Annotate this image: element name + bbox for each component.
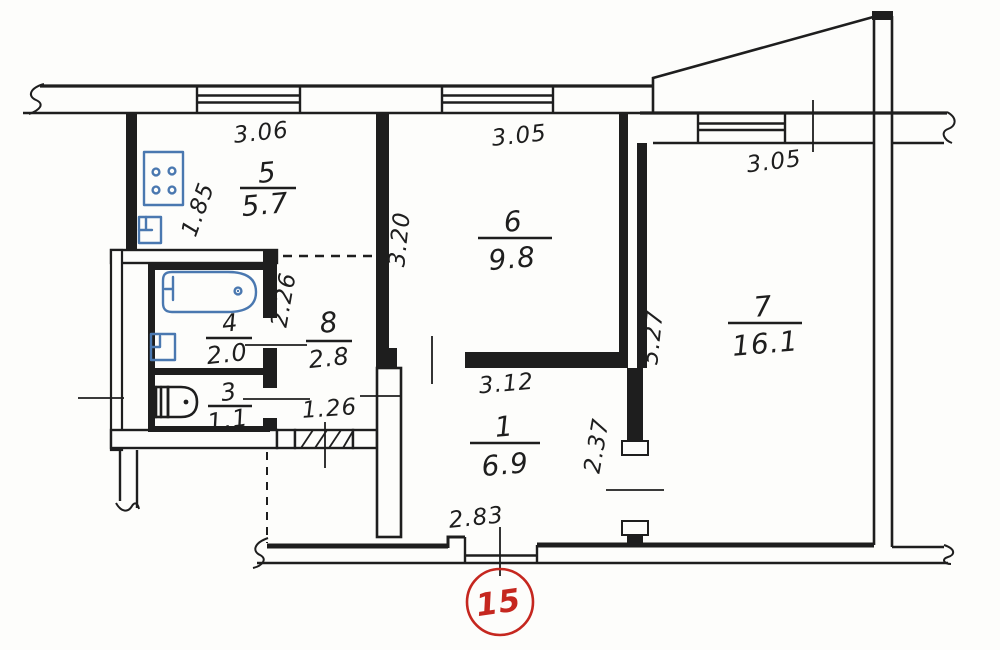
room6-window	[442, 86, 553, 113]
room-3-area: 1.1	[206, 403, 251, 436]
bottom-wall-step	[448, 537, 465, 548]
room-1-area: 6.9	[480, 446, 530, 483]
room6-room1-wall	[465, 352, 627, 368]
entrance-wall-left	[277, 430, 295, 448]
room-3-number: 3	[219, 377, 239, 407]
wall-break-top-left	[29, 84, 44, 114]
bathtub-icon	[163, 272, 256, 312]
room-7-label: 7 16.1	[728, 289, 802, 363]
dim-hall-width: 1.26	[301, 394, 358, 424]
room6-bottom-wall-stub	[376, 348, 397, 368]
bath-block-bottom-wall	[111, 430, 277, 448]
bathroom-top-wall	[148, 263, 270, 270]
interior-walls	[111, 112, 664, 547]
room-4-number: 4	[221, 308, 240, 338]
room-5-label: 5 5.7	[240, 155, 296, 223]
windows	[197, 86, 813, 576]
hall-left-wall-c	[263, 418, 277, 430]
dim-kitchen-width: 3.06	[232, 117, 290, 149]
room-1-number: 1	[493, 409, 515, 444]
toilet-icon	[151, 387, 197, 417]
floor-plan-canvas: 5 5.7 6 9.8 7 16.1 4 2.0 8 2.8 3 1.1	[0, 0, 1000, 650]
dim-room7-depth: 5.27	[637, 308, 669, 366]
room-6-area: 9.8	[487, 240, 537, 277]
room-3-label: 3 1.1	[206, 377, 252, 437]
room1-door-jamb-bottom	[622, 521, 648, 535]
hall-left-wall-b	[263, 348, 277, 388]
sheet-number-badge: 15	[467, 569, 533, 635]
room-7-number: 7	[752, 289, 774, 324]
room-4-area: 2.0	[205, 338, 249, 370]
stair-wall-break	[116, 503, 139, 511]
room-6-label: 6 9.8	[478, 204, 552, 277]
room-8-area: 2.8	[307, 342, 351, 374]
sheet-number: 15	[474, 582, 524, 624]
room-7-area: 16.1	[731, 324, 800, 363]
dim-room6-depth: 3.20	[384, 210, 416, 268]
room1-door-jamb-top	[622, 441, 648, 455]
dim-room1-width: 3.12	[478, 369, 535, 400]
dim-room7-window: 3.05	[745, 146, 803, 179]
wall-break-top-right	[944, 112, 955, 143]
entrance-wall-right	[353, 430, 377, 448]
room6-right-wall	[619, 112, 628, 368]
room1-left-wall	[377, 368, 401, 537]
kitchen-left-wall	[126, 112, 137, 255]
room-8-label: 8 2.8	[306, 305, 352, 374]
dim-room6-width: 3.05	[490, 120, 548, 152]
floor-plan-drawing: 5 5.7 6 9.8 7 16.1 4 2.0 8 2.8 3 1.1	[0, 0, 1000, 650]
room-4-label: 4 2.0	[205, 308, 252, 370]
entrance-door-hatch	[295, 430, 353, 448]
kitchen-window	[197, 86, 300, 113]
room-5-area: 5.7	[240, 186, 290, 223]
stair-wall-stub	[120, 450, 137, 508]
dim-room1-depth: 2.37	[580, 416, 615, 475]
bath-block-top-wall	[111, 250, 277, 263]
wall-break-bottom-right	[944, 545, 953, 564]
room-5-number: 5	[256, 155, 278, 190]
room-1-label: 1 6.9	[470, 409, 540, 483]
room-8-number: 8	[318, 305, 340, 340]
kitchen-sink-icon	[139, 217, 161, 243]
room-6-number: 6	[502, 204, 524, 239]
stove-icon	[144, 152, 183, 205]
bath-block-outer-wall	[111, 250, 122, 450]
dim-balcony-door: 2.83	[447, 502, 505, 534]
balcony-diagonal-line	[653, 14, 884, 113]
